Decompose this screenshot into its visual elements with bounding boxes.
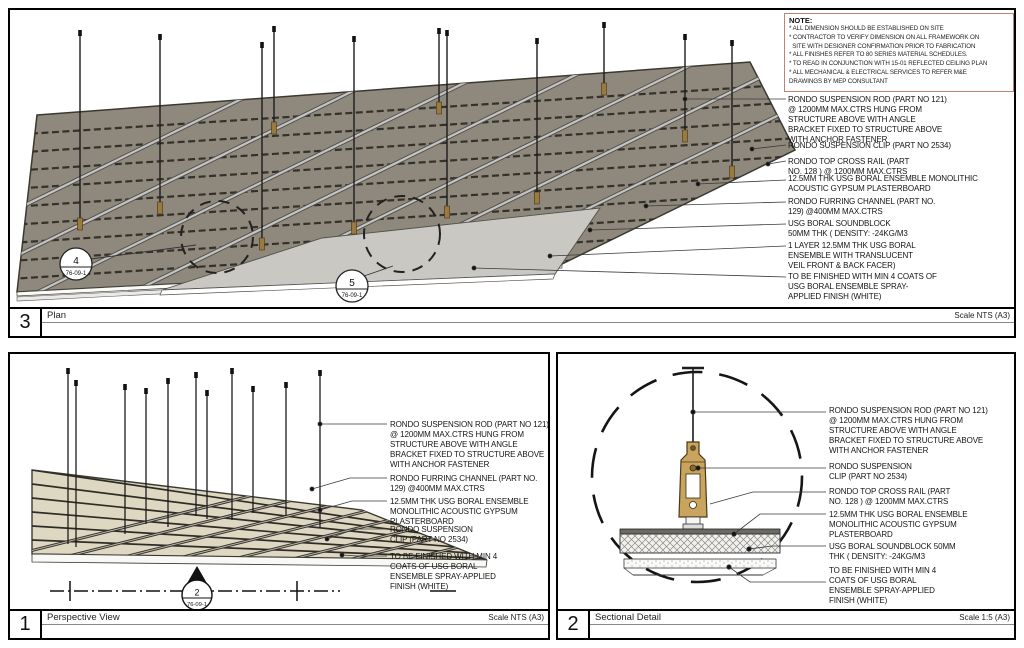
annotation-label: RONDO SUSPENSION CLIP (PART NO 2534) xyxy=(390,525,473,545)
annotation-label: RONDO SUSPENSION CLIP (PART NO 2534) xyxy=(829,462,912,482)
annotation-label: RONDO FURRING CHANNEL (PART NO. 129) @40… xyxy=(788,197,935,217)
note-title: NOTE: xyxy=(789,16,1009,25)
sectional-title-bar: 2 Sectional Detail Scale 1:5 (A3) xyxy=(558,609,1014,638)
plan-scale: Scale NTS (A3) xyxy=(954,311,1010,320)
callout-5-number: 5 xyxy=(349,278,355,289)
annotation-label: RONDO SUSPENSION ROD (PART NO 121) @ 120… xyxy=(829,406,988,456)
section-marker-ref: 76-09-1 xyxy=(187,602,207,608)
annotation-label: 1 LAYER 12.5MM THK USG BORAL ENSEMBLE WI… xyxy=(788,241,916,271)
callout-5-ref: 76-09-1 xyxy=(342,293,363,299)
annotation-label: TO BE FINISHED WITH MIN 4 COATS OF USG B… xyxy=(390,552,497,592)
sectional-number: 2 xyxy=(558,611,590,638)
drawing-sheet: 4 76-09-1 5 76-09-1 xyxy=(0,0,1024,648)
soundblock-layer xyxy=(620,534,780,553)
annotation-label: RONDO SUSPENSION ROD (PART NO 121) @ 120… xyxy=(788,95,947,145)
top-cross-rail-layer xyxy=(620,529,780,534)
title-divider xyxy=(42,322,1014,323)
note-body: * ALL DIMENSION SHOULD BE ESTABLISHED ON… xyxy=(789,25,1009,87)
plan-number: 3 xyxy=(10,309,42,336)
callout-4-ref: 76-09-1 xyxy=(66,271,87,277)
annotation-label: RONDO TOP CROSS RAIL (PART NO. 128 ) @ 1… xyxy=(829,487,950,507)
plan-panel: 4 76-09-1 5 76-09-1 xyxy=(8,8,1016,338)
callout-4-number: 4 xyxy=(73,256,79,267)
plan-title: Plan xyxy=(47,310,66,321)
title-divider xyxy=(42,624,548,625)
suspension-clip xyxy=(679,442,707,517)
leader-lines xyxy=(691,410,826,582)
perspective-scale: Scale NTS (A3) xyxy=(488,613,544,622)
annotation-label: RONDO FURRING CHANNEL (PART NO. 129) @40… xyxy=(390,474,537,494)
sectional-panel: RONDO SUSPENSION ROD (PART NO 121) @ 120… xyxy=(556,352,1016,640)
section-marker-number: 2 xyxy=(194,588,199,598)
annotation-label: RONDO SUSPENSION CLIP (PART NO 2534) xyxy=(788,141,951,151)
sectional-drawing xyxy=(558,354,1014,611)
annotation-label: 12.5MM THK USG BORAL ENSEMBLE MONOLITHIC… xyxy=(788,174,978,194)
title-divider xyxy=(590,624,1014,625)
annotation-label: 12.5MM THK USG BORAL ENSEMBLE MONOLITHIC… xyxy=(829,510,967,540)
sectional-title: Sectional Detail xyxy=(595,612,661,623)
suspension-rod xyxy=(682,368,704,444)
perspective-number: 1 xyxy=(10,611,42,638)
annotation-label: 12.5MM THK USG BORAL ENSEMBLE MONOLITHIC… xyxy=(390,497,528,527)
ceiling-assembly xyxy=(620,529,780,575)
perspective-panel: 2 76-09-1 RONDO SUSPENSION ROD (PART NO … xyxy=(8,352,550,640)
annotation-label: TO BE FINISHED WITH MIN 4 COATS OF USG B… xyxy=(788,272,937,302)
perspective-title: Perspective View xyxy=(47,612,120,623)
section-marker: 2 76-09-1 xyxy=(182,566,212,610)
annotation-label: RONDO SUSPENSION ROD (PART NO 121) @ 120… xyxy=(390,420,549,470)
sectional-scale: Scale 1:5 (A3) xyxy=(959,613,1010,622)
cross-rail-bracket xyxy=(683,517,703,529)
annotation-label: USG BORAL SOUNDBLOCK 50MM THK ( DENSITY:… xyxy=(829,542,956,562)
perspective-title-bar: 1 Perspective View Scale NTS (A3) xyxy=(10,609,548,638)
annotation-label: TO BE FINISHED WITH MIN 4 COATS OF USG B… xyxy=(829,566,936,606)
annotation-label: USG BORAL SOUNDBLOCK 50MM THK ( DENSITY:… xyxy=(788,219,908,239)
plan-title-bar: 3 Plan Scale NTS (A3) xyxy=(10,307,1014,336)
note-box: NOTE: * ALL DIMENSION SHOULD BE ESTABLIS… xyxy=(784,13,1014,92)
